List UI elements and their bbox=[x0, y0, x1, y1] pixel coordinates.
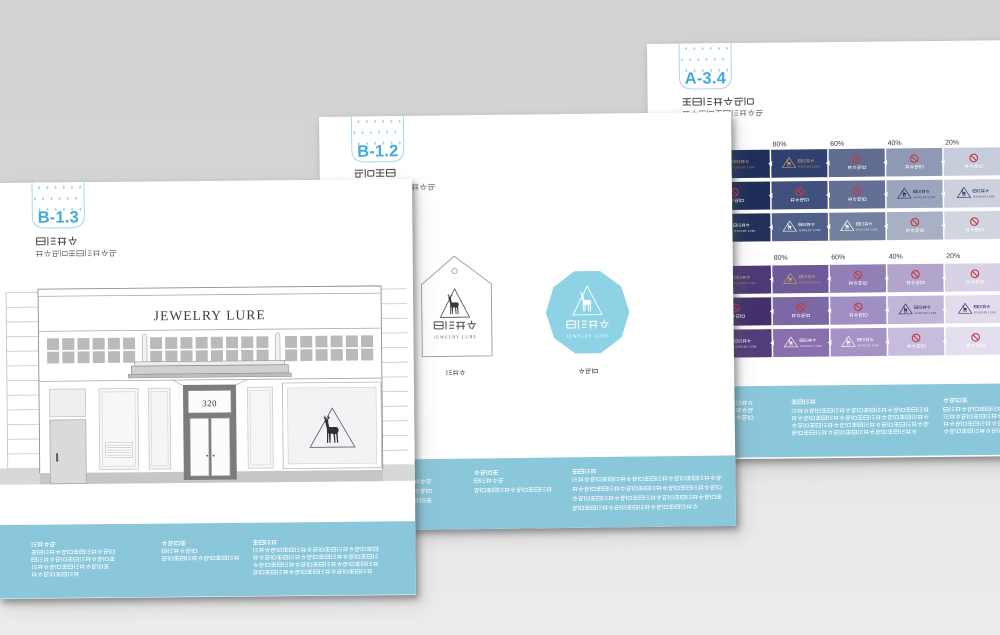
svg-text:20%: 20% bbox=[946, 253, 960, 260]
svg-text:40%: 40% bbox=[888, 140, 902, 147]
svg-text:JEWELRY LURE: JEWELRY LURE bbox=[799, 228, 821, 231]
svg-text:JEWELRY LURE: JEWELRY LURE bbox=[913, 195, 935, 198]
svg-text:80%: 80% bbox=[773, 141, 787, 148]
svg-text:A-3.4: A-3.4 bbox=[685, 69, 727, 87]
svg-text:60%: 60% bbox=[830, 140, 844, 147]
svg-text:40%: 40% bbox=[889, 253, 903, 260]
svg-text:JEWELRY LURE: JEWELRY LURE bbox=[733, 166, 755, 169]
svg-text:JEWELRY LURE: JEWELRY LURE bbox=[915, 311, 937, 314]
svg-text:JEWELRY LURE: JEWELRY LURE bbox=[799, 281, 821, 284]
svg-text:JEWELRY LURE: JEWELRY LURE bbox=[798, 165, 820, 168]
svg-text:JEWELRY LURE: JEWELRY LURE bbox=[800, 344, 822, 347]
svg-text:JEWELRY LURE: JEWELRY LURE bbox=[974, 311, 996, 314]
svg-text:JEWELRY LURE: JEWELRY LURE bbox=[434, 334, 477, 340]
svg-text:JEWELRY LURE: JEWELRY LURE bbox=[566, 333, 609, 339]
svg-text:60%: 60% bbox=[831, 254, 845, 261]
svg-text:JEWELRY LURE: JEWELRY LURE bbox=[734, 229, 756, 232]
svg-text:JEWELRY LURE: JEWELRY LURE bbox=[973, 195, 995, 198]
svg-text:B-1.3: B-1.3 bbox=[38, 208, 80, 226]
svg-text:JEWELRY LURE: JEWELRY LURE bbox=[735, 345, 757, 348]
svg-text:JEWELRY LURE: JEWELRY LURE bbox=[734, 281, 756, 284]
svg-text:B-1.2: B-1.2 bbox=[357, 142, 399, 161]
svg-text:JEWELRY LURE: JEWELRY LURE bbox=[856, 228, 878, 231]
svg-text:JEWELRY LURE: JEWELRY LURE bbox=[154, 307, 266, 323]
svg-text:JEWELRY LURE: JEWELRY LURE bbox=[857, 344, 879, 347]
svg-text:320: 320 bbox=[202, 398, 217, 408]
svg-text:80%: 80% bbox=[774, 254, 788, 261]
svg-text:20%: 20% bbox=[945, 139, 959, 146]
